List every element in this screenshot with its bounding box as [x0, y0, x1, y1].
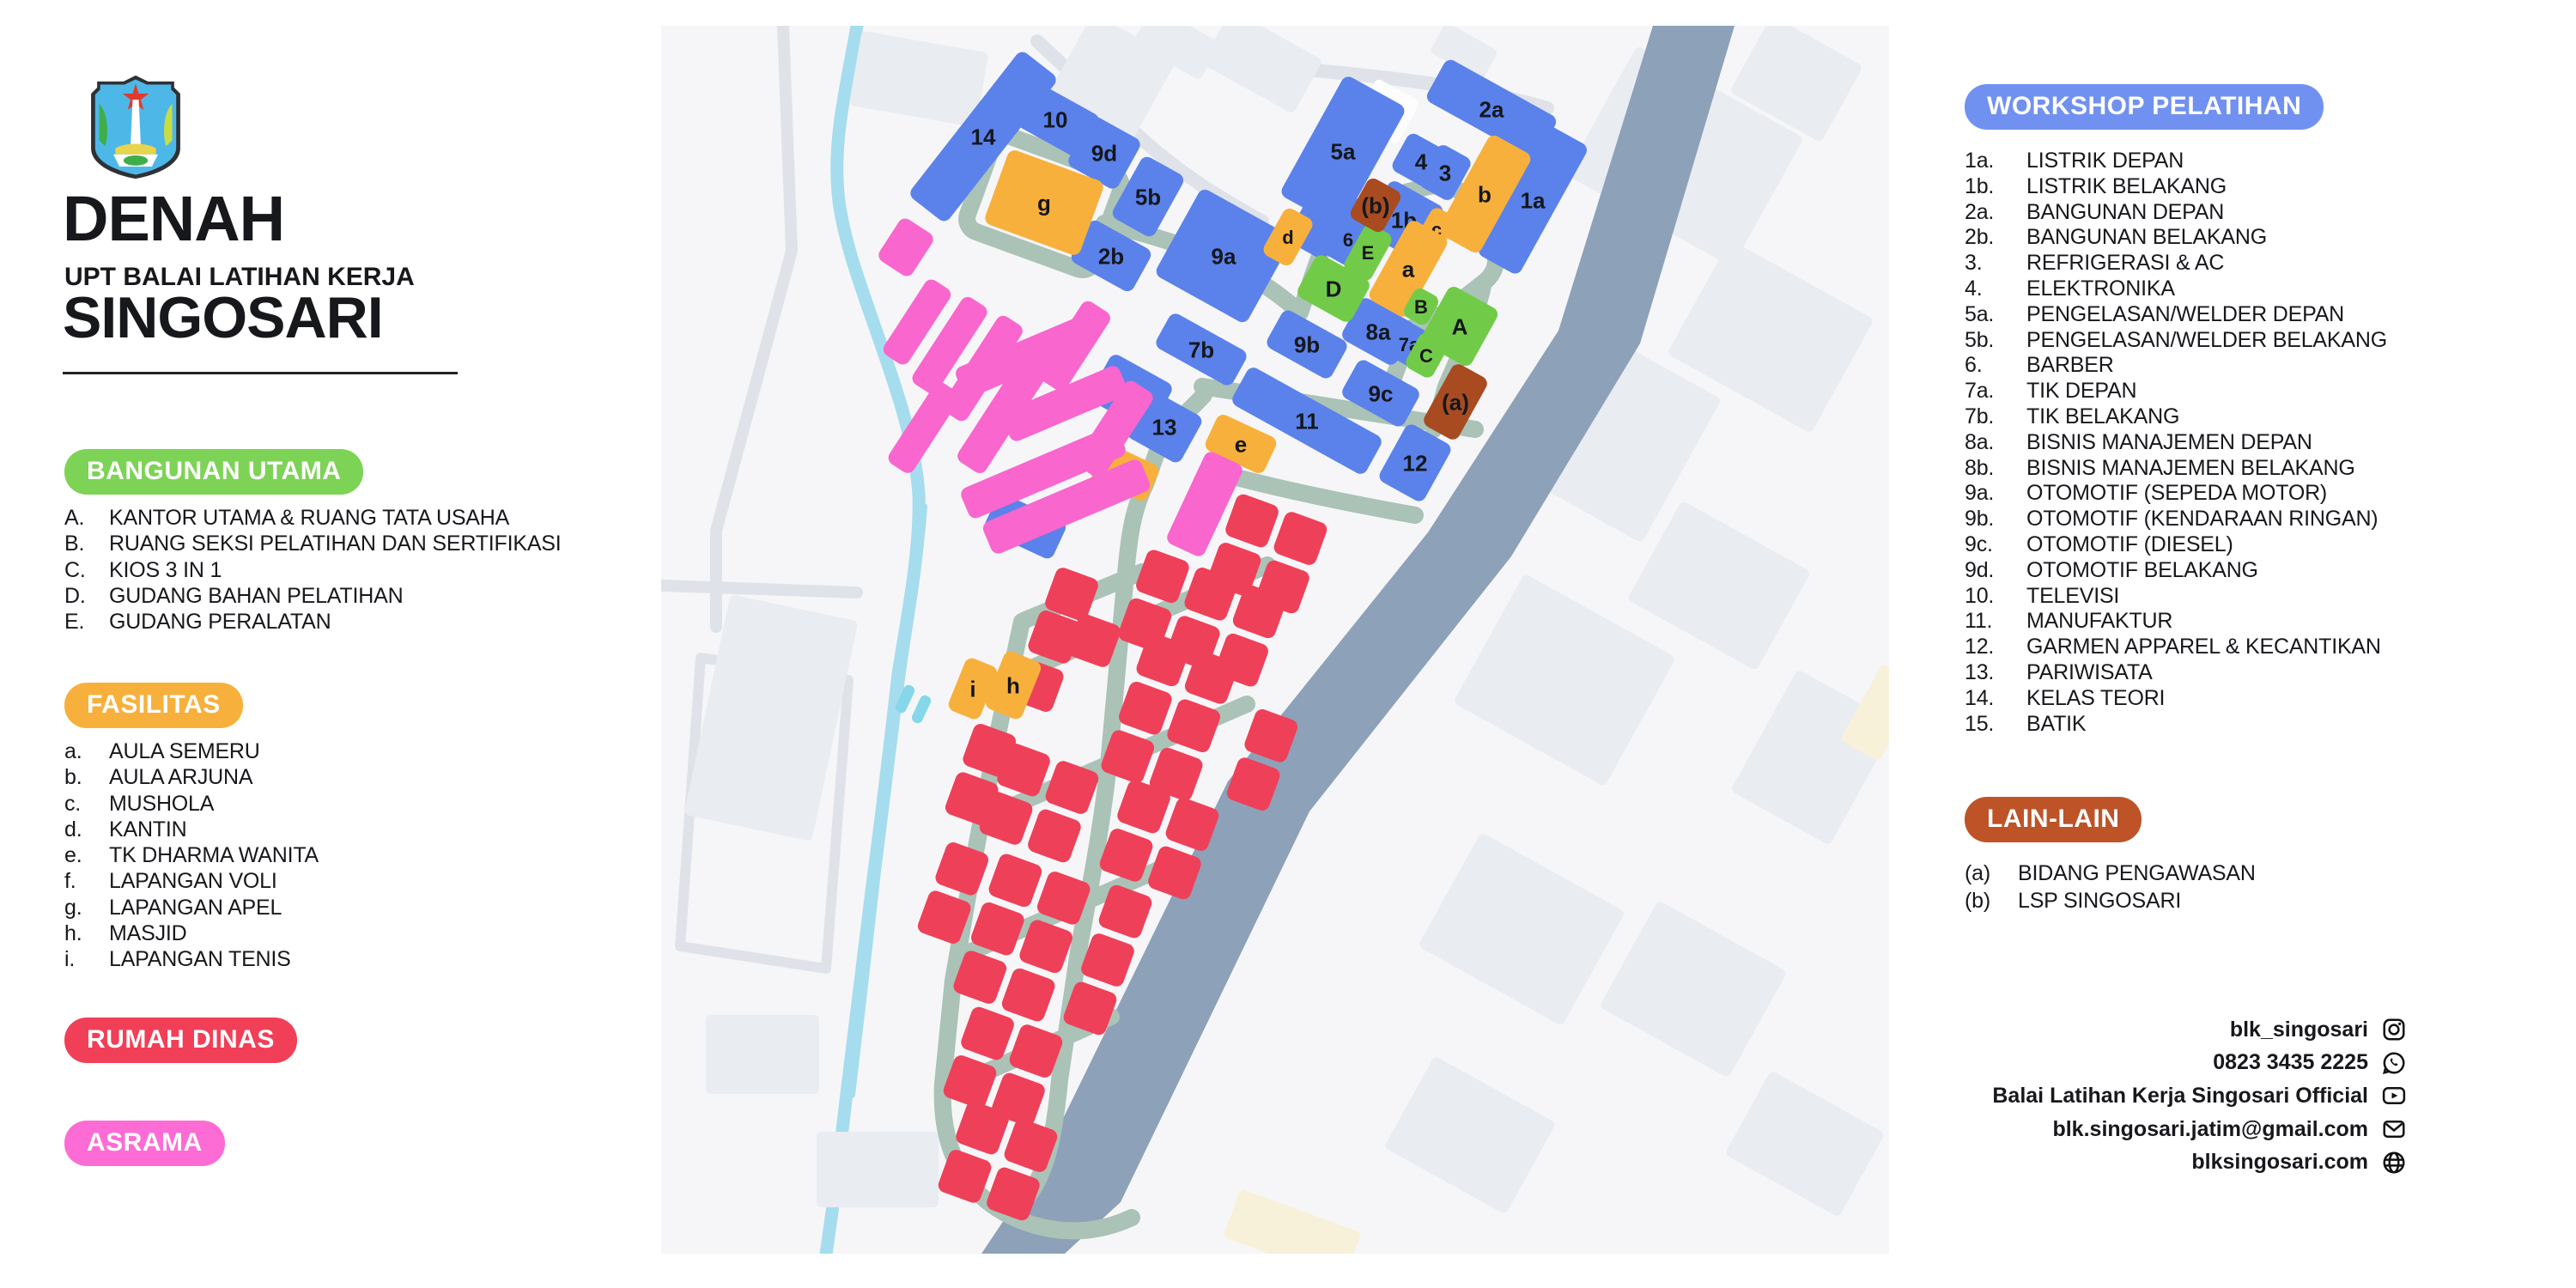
- lain-lain-section: LAIN-LAIN(a)BIDANG PENGAWASAN(b)LSP SING…: [1965, 797, 2256, 916]
- list-item: 7b.TIK BELAKANG: [1965, 404, 2387, 430]
- legend-section-fasilitas: FASILITASa.AULA SEMERUb.AULA ARJUNAc.MUS…: [64, 683, 319, 974]
- building-label: 7b: [1188, 337, 1214, 362]
- item-label: KANTOR UTAMA & RUANG TATA USAHA: [109, 506, 509, 531]
- item-label: LISTRIK DEPAN: [2026, 149, 2184, 173]
- building-label: 13: [1152, 414, 1177, 440]
- item-key: 2b.: [1965, 225, 2026, 250]
- contact-text: blksingosari.com: [2191, 1150, 2368, 1175]
- item-key: f.: [64, 869, 109, 894]
- building-label: 5b: [1135, 184, 1161, 210]
- building-label: 9c: [1369, 380, 1394, 406]
- contact-row: blk_singosari: [1949, 1013, 2408, 1047]
- item-key: B.: [64, 532, 109, 556]
- contact-row: blksingosari.com: [1949, 1145, 2408, 1179]
- item-label: RUANG SEKSI PELATIHAN DAN SERTIFIKASI: [109, 532, 562, 556]
- list-item: (b)LSP SINGOSARI: [1965, 889, 2256, 916]
- instagram-icon: [2380, 1016, 2408, 1043]
- list-item: 2a.BANGUNAN DEPAN: [1965, 200, 2387, 226]
- building-label: 11: [1295, 408, 1319, 434]
- list-item: D.GUDANG BAHAN PELATIHAN: [64, 584, 562, 610]
- item-key: 5a.: [1965, 302, 2026, 327]
- list-item: 5b.PENGELASAN/WELDER BELAKANG: [1965, 328, 2387, 354]
- item-label: TIK BELAKANG: [2026, 404, 2179, 429]
- list-item: d.KANTIN: [64, 817, 319, 843]
- item-key: d.: [64, 817, 109, 842]
- item-label: MASJID: [109, 921, 186, 946]
- list-item: 4.ELEKTRONIKA: [1965, 276, 2387, 302]
- item-label: OTOMOTIF (DIESEL): [2026, 532, 2233, 557]
- list-item: 1a.LISTRIK DEPAN: [1965, 149, 2387, 174]
- item-key: 7a.: [1965, 379, 2026, 404]
- legend-items: a.AULA SEMERUb.AULA ARJUNAc.MUSHOLAd.KAN…: [64, 739, 319, 974]
- legend-section-rumah-dinas: RUMAH DINAS: [64, 1018, 297, 1063]
- item-label: KELAS TEORI: [2026, 686, 2165, 711]
- list-item: C.KIOS 3 IN 1: [64, 558, 562, 584]
- building-label: (b): [1361, 192, 1389, 218]
- item-key: E.: [64, 610, 109, 635]
- list-item: 9d.OTOMOTIF BELAKANG: [1965, 558, 2387, 584]
- list-item: 9b.OTOMOTIF (KENDARAAN RINGAN): [1965, 507, 2387, 532]
- list-item: f.LAPANGAN VOLI: [64, 869, 319, 895]
- item-label: BATIK: [2026, 712, 2086, 737]
- contact-block: blk_singosari0823 3435 2225Balai Latihan…: [1949, 1013, 2408, 1179]
- item-key: D.: [64, 584, 109, 609]
- item-key: A.: [64, 506, 109, 531]
- list-item: c.MUSHOLA: [64, 792, 319, 817]
- item-key: 9b.: [1965, 507, 2026, 532]
- list-item: 9c.OTOMOTIF (DIESEL): [1965, 532, 2387, 558]
- item-label: BISNIS MANAJEMEN BELAKANG: [2026, 456, 2355, 481]
- list-item: 12.GARMEN APPAREL & KECANTIKAN: [1965, 635, 2387, 660]
- item-label: OTOMOTIF (KENDARAAN RINGAN): [2026, 507, 2378, 532]
- item-label: PARIWISATA: [2026, 660, 2153, 685]
- item-key: 8a.: [1965, 430, 2026, 455]
- map-road-minor: [663, 586, 857, 592]
- item-label: AULA ARJUNA: [109, 765, 252, 790]
- item-key: 10.: [1965, 584, 2026, 609]
- item-key: 9a.: [1965, 481, 2026, 506]
- item-key: 6.: [1965, 353, 2026, 378]
- item-key: 14.: [1965, 686, 2026, 711]
- list-item: 8b.BISNIS MANAJEMEN BELAKANG: [1965, 456, 2387, 482]
- page-title: DENAH: [63, 187, 284, 251]
- item-label: PENGELASAN/WELDER DEPAN: [2026, 302, 2344, 327]
- item-key: 9c.: [1965, 532, 2026, 557]
- building-label: 8a: [1366, 319, 1391, 344]
- list-item: 8a.BISNIS MANAJEMEN DEPAN: [1965, 430, 2387, 456]
- page-title-city: SINGOSARI: [63, 289, 383, 347]
- item-key: b.: [64, 765, 109, 790]
- whatsapp-icon: [2380, 1049, 2408, 1077]
- email-icon: [2380, 1115, 2408, 1143]
- list-item: B.RUANG SEKSI PELATIHAN DAN SERTIFIKASI: [64, 532, 562, 557]
- item-key: h.: [64, 921, 109, 946]
- list-item: i.LAPANGAN TENIS: [64, 947, 319, 973]
- item-key: C.: [64, 558, 109, 583]
- item-key: 3.: [1965, 251, 2026, 276]
- item-label: TK DHARMA WANITA: [109, 843, 319, 868]
- list-item: 7a.TIK DEPAN: [1965, 379, 2387, 404]
- building-label: h: [1006, 672, 1020, 698]
- title-underline: [63, 372, 458, 374]
- item-label: BANGUNAN DEPAN: [2026, 200, 2224, 225]
- building-label: d: [1282, 227, 1293, 248]
- list-item: E.GUDANG PERALATAN: [64, 610, 562, 635]
- list-item: (a)BIDANG PENGAWASAN: [1965, 861, 2256, 889]
- item-label: LSP SINGOSARI: [2018, 889, 2181, 914]
- item-label: PENGELASAN/WELDER BELAKANG: [2026, 328, 2387, 353]
- item-label: LAPANGAN TENIS: [109, 947, 291, 972]
- building-label: (a): [1442, 389, 1469, 415]
- list-item: A.KANTOR UTAMA & RUANG TATA USAHA: [64, 506, 562, 532]
- item-label: OTOMOTIF BELAKANG: [2026, 558, 2258, 583]
- contact-text: blk_singosari: [2230, 1018, 2368, 1042]
- list-item: e.TK DHARMA WANITA: [64, 843, 319, 869]
- item-key: 12.: [1965, 635, 2026, 659]
- site-map-svg: 14109d5b2b9a7b8b131511129b9c8a7a61b5a432…: [661, 26, 1889, 1254]
- building-label: a: [1402, 256, 1415, 282]
- item-key: 9d.: [1965, 558, 2026, 583]
- item-key: g.: [64, 896, 109, 920]
- map-bg-building: [706, 1015, 819, 1094]
- building-label: 9d: [1091, 140, 1117, 166]
- building-label: E: [1362, 242, 1375, 264]
- building-label: 10: [1043, 106, 1068, 132]
- list-item: 6.BARBER: [1965, 353, 2387, 379]
- item-label: ELEKTRONIKA: [2026, 276, 2175, 301]
- building-label: B: [1414, 296, 1428, 318]
- list-item: 15.BATIK: [1965, 712, 2387, 738]
- item-label: BARBER: [2026, 353, 2114, 378]
- list-item: 1b.LISTRIK BELAKANG: [1965, 174, 2387, 200]
- building-label: 12: [1403, 450, 1428, 476]
- item-label: AULA SEMERU: [109, 739, 260, 764]
- contact-text: Balai Latihan Kerja Singosari Official: [1992, 1084, 2368, 1109]
- item-key: 7b.: [1965, 404, 2026, 429]
- list-item: g.LAPANGAN APEL: [64, 896, 319, 921]
- list-item: 10.TELEVISI: [1965, 584, 2387, 610]
- building-label: 5a: [1331, 138, 1356, 164]
- item-key: 13.: [1965, 660, 2026, 685]
- legend-pill-bangunan-utama: BANGUNAN UTAMA: [64, 449, 363, 495]
- building-label: e: [1235, 431, 1247, 457]
- legend-pill-asrama: ASRAMA: [64, 1121, 225, 1166]
- list-item: 14.KELAS TEORI: [1965, 686, 2387, 712]
- globe-icon: [2380, 1149, 2408, 1176]
- item-key: (a): [1965, 861, 2018, 886]
- item-label: BANGUNAN BELAKANG: [2026, 225, 2267, 250]
- building-label: 9a: [1212, 243, 1236, 269]
- site-map: 14109d5b2b9a7b8b131511129b9c8a7a61b5a432…: [661, 26, 1889, 1254]
- item-label: LAPANGAN APEL: [109, 896, 282, 920]
- building-label: 9b: [1294, 331, 1320, 357]
- item-key: 8b.: [1965, 456, 2026, 481]
- item-key: 1b.: [1965, 174, 2026, 199]
- item-key: i.: [64, 947, 109, 972]
- building-label: 14: [971, 124, 996, 149]
- item-key: (b): [1965, 889, 2018, 914]
- item-label: BIDANG PENGAWASAN: [2018, 861, 2256, 886]
- building-label: 2a: [1479, 96, 1504, 122]
- legend-pill-rumah-dinas: RUMAH DINAS: [64, 1018, 297, 1063]
- list-item: 2b.BANGUNAN BELAKANG: [1965, 225, 2387, 251]
- list-item: 11.MANUFAKTUR: [1965, 609, 2387, 635]
- list-item: 9a.OTOMOTIF (SEPEDA MOTOR): [1965, 481, 2387, 507]
- item-label: BISNIS MANAJEMEN DEPAN: [2026, 430, 2312, 455]
- item-label: TELEVISI: [2026, 584, 2119, 609]
- building-label: A: [1452, 313, 1468, 339]
- contact-row: 0823 3435 2225: [1949, 1047, 2408, 1080]
- building-label: i: [969, 676, 975, 702]
- list-item: 13.PARIWISATA: [1965, 660, 2387, 686]
- item-key: 2a.: [1965, 200, 2026, 225]
- contact-text: 0823 3435 2225: [2213, 1050, 2368, 1075]
- item-key: 5b.: [1965, 328, 2026, 353]
- item-label: MANUFAKTUR: [2026, 609, 2172, 634]
- item-key: 1a.: [1965, 149, 2026, 173]
- item-label: MUSHOLA: [109, 792, 214, 817]
- item-key: a.: [64, 739, 109, 764]
- item-key: e.: [64, 843, 109, 868]
- contact-row: blk.singosari.jatim@gmail.com: [1949, 1113, 2408, 1146]
- legend-pill-fasilitas: FASILITAS: [64, 683, 243, 728]
- section-items: 1a.LISTRIK DEPAN1b.LISTRIK BELAKANG2a.BA…: [1965, 149, 2387, 737]
- list-item: h.MASJID: [64, 921, 319, 947]
- list-item: 3.REFRIGERASI & AC: [1965, 251, 2387, 276]
- item-label: LISTRIK BELAKANG: [2026, 174, 2227, 199]
- item-key: 15.: [1965, 712, 2026, 737]
- building-label: 1a: [1521, 187, 1546, 213]
- list-item: b.AULA ARJUNA: [64, 765, 319, 791]
- building-label: D: [1326, 276, 1342, 301]
- building-label: C: [1419, 345, 1433, 367]
- contact-row: Balai Latihan Kerja Singosari Official: [1949, 1079, 2408, 1113]
- item-label: LAPANGAN VOLI: [109, 869, 277, 894]
- legend-items: A.KANTOR UTAMA & RUANG TATA USAHAB.RUANG…: [64, 506, 562, 635]
- map-bg-building: [817, 1132, 939, 1207]
- legend-section-bangunan-utama: BANGUNAN UTAMAA.KANTOR UTAMA & RUANG TAT…: [64, 449, 562, 635]
- contact-text: blk.singosari.jatim@gmail.com: [2052, 1117, 2368, 1142]
- item-key: 11.: [1965, 609, 2026, 634]
- item-label: REFRIGERASI & AC: [2026, 251, 2224, 276]
- building-label: 2b: [1098, 243, 1124, 269]
- item-label: KANTIN: [109, 817, 186, 842]
- jawa-timur-logo: [85, 73, 186, 181]
- building-label: g: [1037, 190, 1051, 216]
- item-label: KIOS 3 IN 1: [109, 558, 222, 583]
- building-label: 6: [1343, 229, 1353, 251]
- section-pill: LAIN-LAIN: [1965, 797, 2142, 842]
- item-label: TIK DEPAN: [2026, 379, 2136, 404]
- legend-section-asrama: ASRAMA: [64, 1121, 225, 1166]
- item-label: GUDANG PERALATAN: [109, 610, 331, 635]
- youtube-icon: [2380, 1082, 2408, 1109]
- building-label: b: [1478, 181, 1492, 207]
- list-item: a.AULA SEMERU: [64, 739, 319, 765]
- list-item: 5a.PENGELASAN/WELDER DEPAN: [1965, 302, 2387, 328]
- workshop-section: WORKSHOP PELATIHAN1a.LISTRIK DEPAN1b.LIS…: [1965, 84, 2387, 737]
- item-label: GARMEN APPAREL & KECANTIKAN: [2026, 635, 2381, 659]
- item-key: c.: [64, 792, 109, 817]
- building-label: 3: [1439, 160, 1451, 185]
- item-label: OTOMOTIF (SEPEDA MOTOR): [2026, 481, 2327, 506]
- item-label: GUDANG BAHAN PELATIHAN: [109, 584, 403, 609]
- section-pill: WORKSHOP PELATIHAN: [1965, 84, 2324, 130]
- section-items: (a)BIDANG PENGAWASAN(b)LSP SINGOSARI: [1965, 861, 2256, 916]
- item-key: 4.: [1965, 276, 2026, 301]
